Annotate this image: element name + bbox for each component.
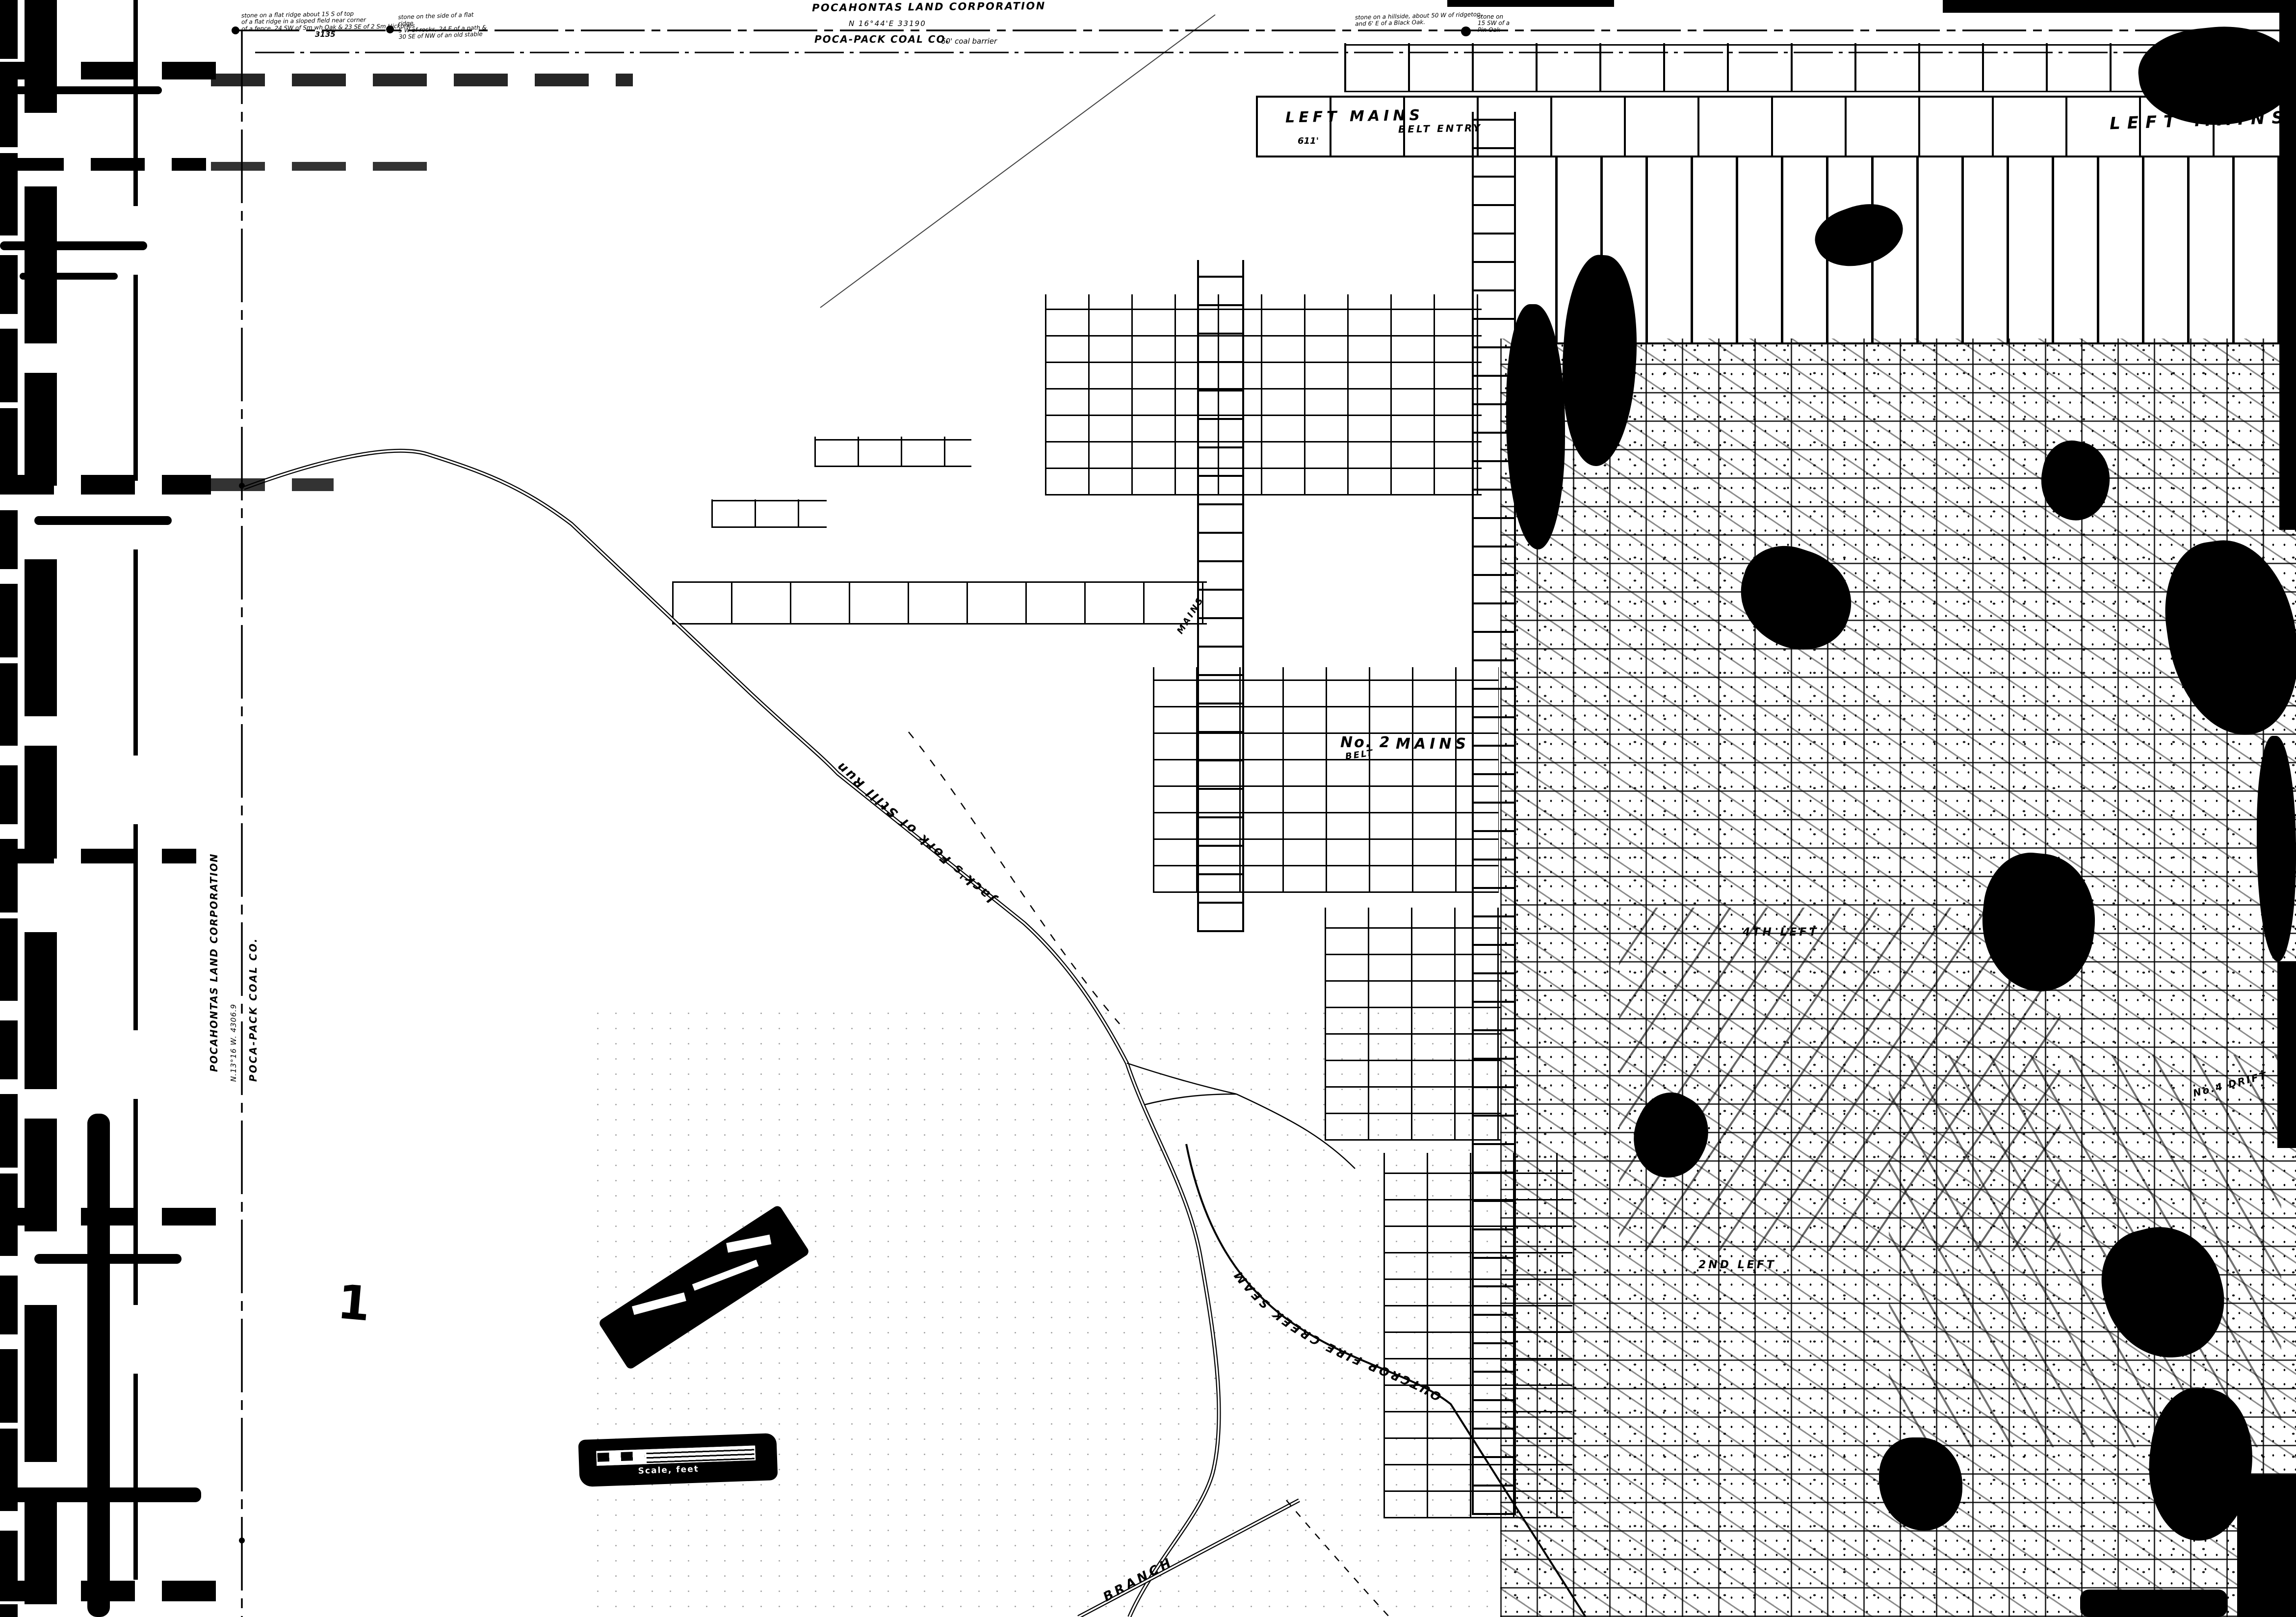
film-streak [0, 849, 196, 863]
coal-barrier-note: 60' coal barrier [941, 37, 997, 46]
film-streak [0, 1487, 201, 1502]
stamp-mark [632, 1292, 686, 1315]
film-streak [15, 86, 162, 94]
outcrop-line [1186, 1144, 1586, 1617]
survey-note-4: stone on 15 SW of a Pin Oak [1478, 14, 1541, 33]
scale-bar-rule [596, 1446, 756, 1466]
scan-edge-bottom [2080, 1590, 2227, 1617]
film-smear-vertical [87, 1114, 110, 1617]
film-streak [0, 475, 211, 495]
stamp-mark [692, 1260, 759, 1291]
scan-edge-top-1 [1943, 0, 2296, 13]
stream-name-label: Jack's Fork of Still Run [833, 758, 1000, 908]
sheet-streak [211, 162, 437, 171]
trail-dashed-south [1286, 1500, 1389, 1617]
scan-edge-right-2 [2277, 962, 2296, 1148]
west-boundary-bearing: N.13°16 W. 4306.9 [230, 1004, 238, 1082]
west-boundary-corporation: POCAHONTAS LAND CORPORATION [208, 853, 220, 1072]
scan-edge-top-2 [1447, 0, 1614, 7]
film-streak [10, 158, 206, 171]
film-streak [0, 1208, 216, 1226]
stamp-mark [726, 1235, 771, 1253]
svg-text:OUTCROP FIRE CREEK SEAM: OUTCROP FIRE CREEK SEAM [1230, 1267, 1443, 1404]
pencil-line [820, 15, 1215, 308]
linework-overlay: Jack's Fork of Still Run OUTCROP FIRE CR… [0, 0, 2296, 1617]
film-streak [0, 241, 147, 250]
label-second-left: 2ND LEFT [1698, 1259, 1776, 1271]
scan-edge-right-3 [2237, 1474, 2296, 1617]
scanned-mine-map-sheet: Jack's Fork of Still Run OUTCROP FIRE CR… [0, 0, 2296, 1617]
label-611: 611' [1298, 136, 1319, 146]
scale-bar-label: Scale, feet [638, 1464, 699, 1476]
outcrop-label: OUTCROP FIRE CREEK SEAM [1230, 1267, 1443, 1404]
scale-bar: Scale, feet [578, 1433, 778, 1487]
film-streak [0, 1581, 231, 1601]
scale-bar-checker [597, 1451, 645, 1461]
survey-monument [1461, 26, 1471, 36]
boundary-bearing-north: N 16°44'E 33190 [849, 20, 926, 28]
sheet-streak [211, 478, 334, 491]
label-fourth-left: 4TH LEFT [1743, 926, 1819, 939]
film-streak [34, 1254, 182, 1264]
company-name: POCA-PACK COAL CO. [814, 33, 950, 45]
film-streak [20, 273, 118, 280]
road-junction [1127, 1063, 1355, 1169]
sheet-streak [211, 74, 633, 86]
scan-edge-right-1 [2279, 0, 2296, 530]
boundary-distance-3135: 3135 [315, 30, 336, 39]
label-no2-mains: MAINS [1396, 735, 1470, 753]
map-title: POCAHONTAS LAND CORPORATION [812, 0, 1046, 14]
survey-note-2: stone on the side of a flat ridge 5 W of… [398, 11, 487, 41]
film-streak [0, 62, 231, 79]
survey-monument [232, 26, 239, 34]
trail-dashed [909, 732, 1120, 1024]
svg-text:Jack's Fork of Still Run: Jack's Fork of Still Run [833, 758, 1000, 908]
film-streak [34, 516, 172, 525]
label-belt-entry: BELT ENTRY [1398, 122, 1482, 135]
sheet-number: 1 [336, 1278, 372, 1328]
west-boundary-company: POCA-PACK COAL CO. [247, 937, 259, 1082]
survey-monument [239, 1538, 245, 1543]
scale-bar-divisions [646, 1447, 755, 1463]
